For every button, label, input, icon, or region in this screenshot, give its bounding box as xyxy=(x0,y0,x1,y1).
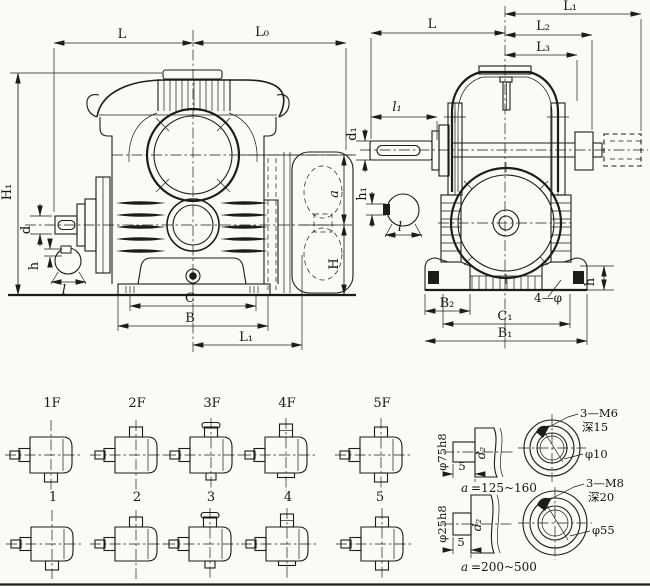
side-output-end xyxy=(575,132,641,170)
front-pedestal xyxy=(138,258,246,284)
front-fan-shroud xyxy=(268,152,353,293)
side-breather xyxy=(500,77,512,110)
variant-label-1: 1 xyxy=(49,490,57,505)
side-right-column xyxy=(547,103,569,195)
variant-label-2: 2 xyxy=(133,490,141,505)
detail2-shaft-dia-label: d₂ xyxy=(470,519,484,532)
variant-label-3: 3 xyxy=(207,490,215,505)
variant-figure-3 xyxy=(164,508,241,579)
detail1-a-range: =125~160 xyxy=(471,481,537,495)
variant-row-fan: 1F 2F 3F 4F 5F xyxy=(5,396,412,491)
dim-label-B1: B₁ xyxy=(498,326,513,341)
dim-label-h-side: h xyxy=(583,277,598,286)
front-view: L L₀ H₁ d h l C B L₁ a H xyxy=(0,25,356,352)
front-dimensions xyxy=(10,43,352,350)
dim-label-B2: B₂ xyxy=(440,296,455,311)
dim-label-L2: L₂ xyxy=(536,19,550,34)
dim-label-L-side: L xyxy=(428,17,437,32)
dim-label-L1-front: L₁ xyxy=(239,330,253,345)
detail2-a-range: =200~500 xyxy=(471,560,537,574)
variant-figure-4f xyxy=(240,418,317,491)
drawing-sheet: L L₀ H₁ d h l C B L₁ a H xyxy=(0,0,650,587)
detail1-a-label: a xyxy=(461,481,468,495)
dim-label-feet-holes: 4—φ xyxy=(534,291,562,305)
detail1-hole-dia-label: φ10 xyxy=(585,447,608,461)
variant-label-4: 4 xyxy=(284,490,292,505)
variant-figure-1 xyxy=(6,510,83,579)
detail2-depth-label: 深20 xyxy=(588,490,614,504)
dim-label-d1: d₁ xyxy=(345,127,360,141)
variant-figure-2 xyxy=(90,510,167,579)
dim-label-h: h xyxy=(27,261,42,270)
variant-figure-5 xyxy=(336,508,413,579)
dim-label-l: l xyxy=(62,283,66,298)
dim-label-d: d xyxy=(19,226,34,234)
variant-label-4f: 4F xyxy=(278,396,295,411)
side-key-section xyxy=(366,192,422,237)
variant-label-3f: 3F xyxy=(203,396,220,411)
detail2-tapped-label: 3—M8 xyxy=(586,476,624,490)
side-left-foot-bolt xyxy=(428,271,439,284)
detail2-protrusion-label: 5 xyxy=(457,535,464,549)
side-left-column xyxy=(444,103,466,195)
dim-label-a: a xyxy=(327,190,342,198)
detail1-flange-face: 3—M6 深15 φ10 xyxy=(518,406,618,482)
side-view: L₁ L₂ L₃ L l₁ d₁ h₁ l B₂ C₁ B₁ 4—φ h xyxy=(345,0,648,350)
detail2-hole-dia-label: φ55 xyxy=(592,523,615,537)
dim-label-B: B xyxy=(185,311,195,326)
variant-label-1f: 1F xyxy=(43,396,60,411)
front-housing-roof xyxy=(97,80,284,117)
detail1-depth-label: 深15 xyxy=(582,420,608,434)
front-drain-plug xyxy=(189,272,197,280)
front-top-cap xyxy=(163,70,222,79)
variant-figure-2f xyxy=(90,420,167,491)
dim-label-L0: L₀ xyxy=(255,25,269,40)
detail1-protrusion-label: 5 xyxy=(458,459,465,473)
variant-figure-1f xyxy=(5,420,82,491)
front-fin-block xyxy=(158,79,230,111)
dim-label-h1: h₁ xyxy=(355,187,370,201)
side-dimensions xyxy=(356,14,641,345)
variant-label-2f: 2F xyxy=(128,396,145,411)
variant-figure-5f xyxy=(335,418,412,491)
detail2-pilot-dia-label: φ25h8 xyxy=(435,505,449,542)
dim-label-L1-side: L₁ xyxy=(563,0,577,14)
variant-label-5: 5 xyxy=(376,490,384,505)
variant-label-5f: 5F xyxy=(373,396,390,411)
detail1-pilot-dia-label: φ75h8 xyxy=(435,433,449,470)
technical-drawing: L L₀ H₁ d h l C B L₁ a H xyxy=(0,0,650,587)
dim-label-l1: l₁ xyxy=(392,100,401,115)
detail2-a-label: a xyxy=(461,560,468,574)
variant-figure-3f xyxy=(165,418,242,491)
side-rib-strips xyxy=(441,195,571,262)
dim-label-H1: H₁ xyxy=(0,184,15,201)
dim-label-l-side: l xyxy=(398,220,402,235)
variant-figure-4 xyxy=(241,508,318,579)
dim-label-L3: L₃ xyxy=(536,40,550,55)
side-key xyxy=(383,204,390,215)
dim-label-L: L xyxy=(118,27,127,42)
fan-blade-lower xyxy=(304,228,342,280)
dim-label-C: C xyxy=(185,291,195,306)
dim-label-C1: C₁ xyxy=(497,309,512,324)
variant-row-basic: 1 2 3 4 5 xyxy=(6,490,413,579)
dim-label-H: H xyxy=(327,258,342,269)
detail1-tapped-label: 3—M6 xyxy=(580,406,618,420)
front-key xyxy=(61,246,71,253)
detail1-shaft-dia-label: d₂ xyxy=(474,447,488,460)
front-worm-shaft xyxy=(55,177,110,273)
